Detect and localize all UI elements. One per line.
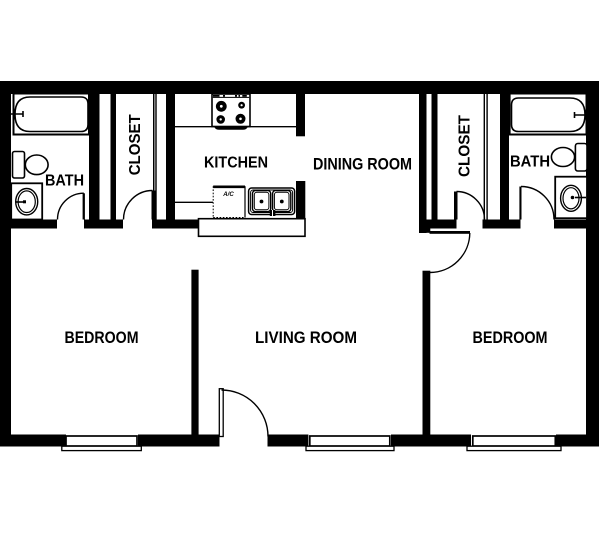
svg-text:KITCHEN: KITCHEN xyxy=(204,155,268,172)
svg-text:DINING ROOM: DINING ROOM xyxy=(313,156,412,174)
svg-text:BATH: BATH xyxy=(45,173,84,190)
svg-text:BEDROOM: BEDROOM xyxy=(65,328,139,347)
svg-text:CLOSET: CLOSET xyxy=(127,114,144,175)
svg-text:CLOSET: CLOSET xyxy=(456,115,473,177)
svg-text:LIVING ROOM: LIVING ROOM xyxy=(255,328,357,347)
svg-text:BEDROOM: BEDROOM xyxy=(473,328,548,347)
svg-text:BATH: BATH xyxy=(510,154,550,171)
svg-text:A/C: A/C xyxy=(222,191,234,198)
